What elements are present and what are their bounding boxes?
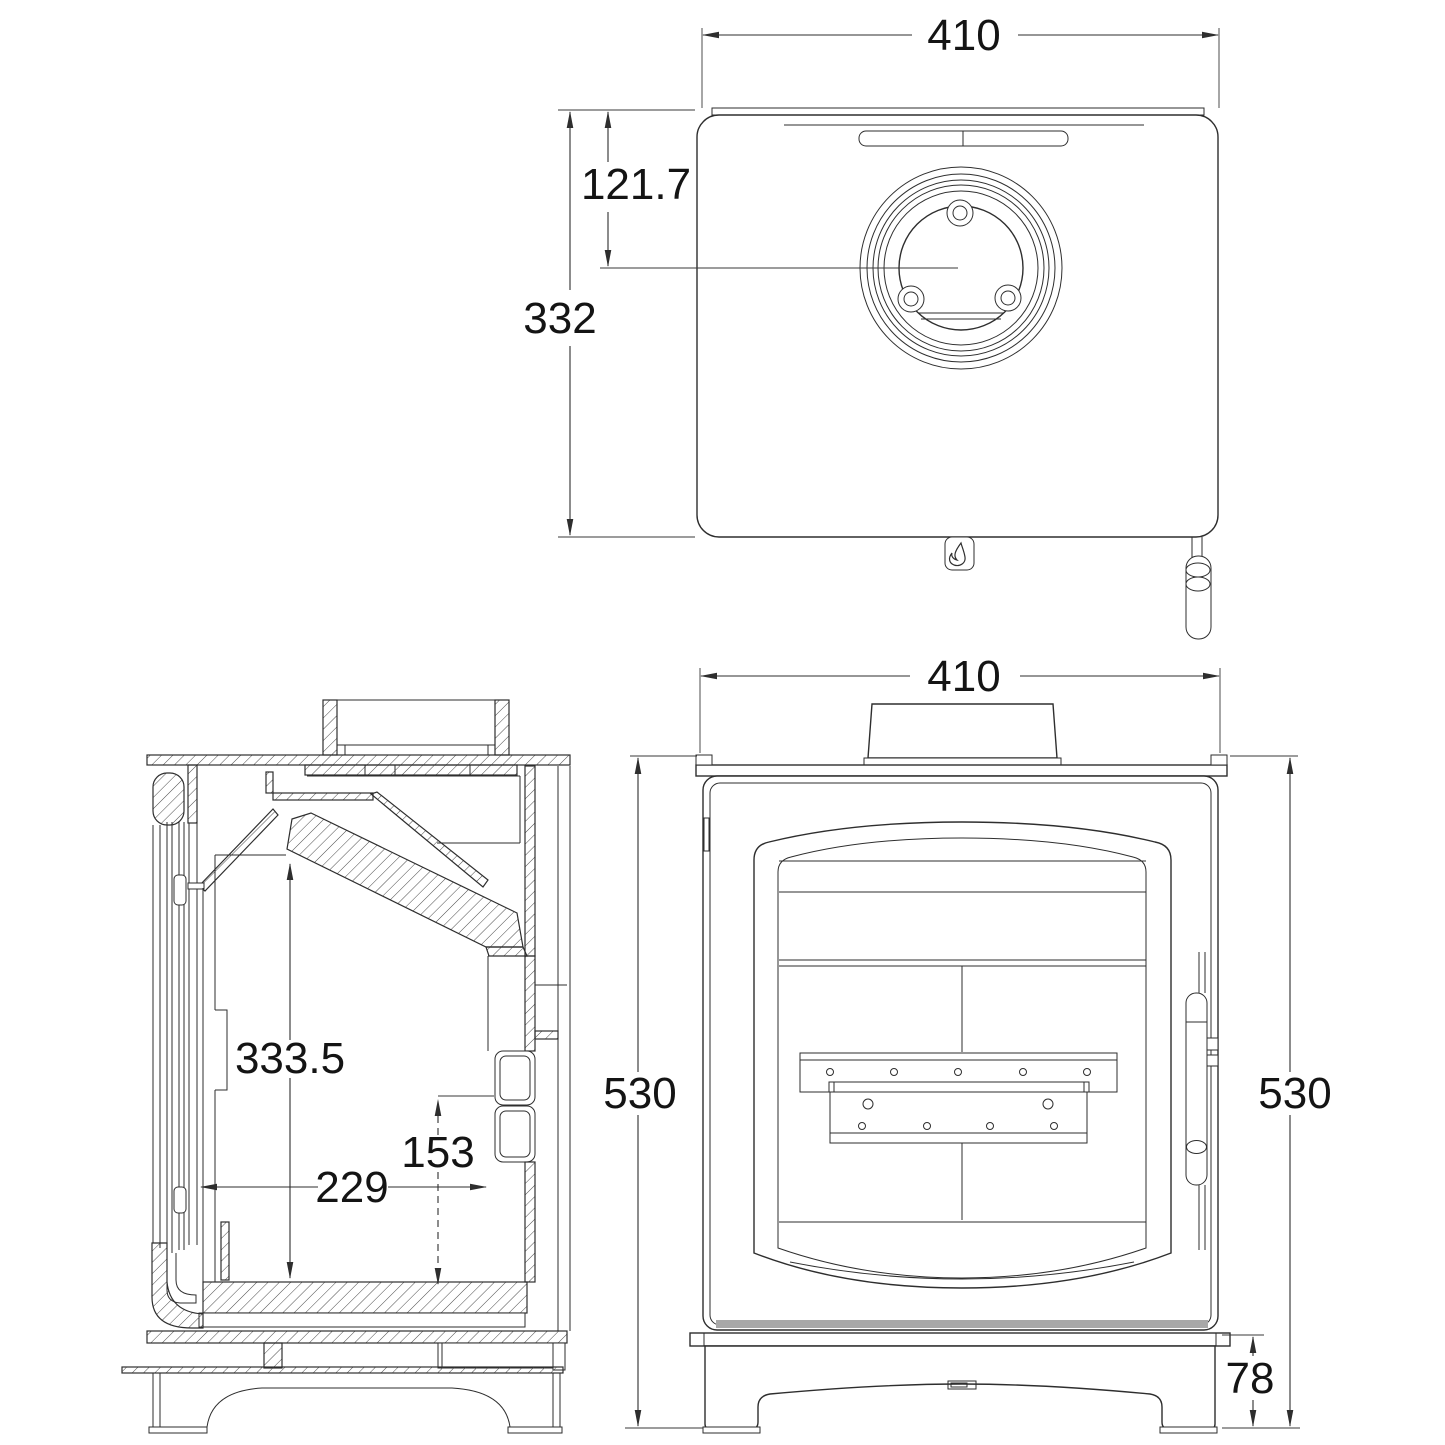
door-top-section [153, 773, 184, 825]
dim-height-left: 530 [603, 756, 703, 1428]
dim-plinth-height: 78 [1222, 1335, 1274, 1426]
dim-label-height-left: 530 [603, 1069, 676, 1118]
top-plate-front [696, 765, 1227, 776]
flame-badge [945, 537, 974, 570]
dim-height-right: 530 [1222, 756, 1332, 1428]
flue-collar-front [868, 704, 1057, 758]
dim-label-height-right: 530 [1258, 1069, 1331, 1118]
dim-label-flue-offset: 121.7 [581, 160, 691, 209]
dim-label-firebox-height: 333.5 [235, 1034, 345, 1083]
dim-label-rear-outlet-height: 153 [401, 1128, 474, 1177]
shell-bottom-corner [152, 1243, 203, 1328]
fuel-retainer [800, 1053, 1117, 1143]
technical-drawing-page: 410 121.7 332 [0, 0, 1445, 1445]
airwash-plate [273, 793, 373, 800]
door-hinge [174, 875, 186, 905]
plinth-arch [207, 1388, 510, 1427]
dim-label-plinth-height: 78 [1226, 1354, 1275, 1403]
top-plate-section [147, 755, 570, 765]
front-baffle-plate [199, 809, 278, 891]
front-view: 410 530 530 78 [603, 652, 1331, 1433]
dim-label-firebox-depth: 229 [315, 1163, 388, 1212]
dim-label-front-width: 410 [927, 652, 1000, 701]
base-plate-front [690, 1333, 1230, 1346]
heat-shield [122, 1367, 563, 1373]
top-rear-edge [712, 108, 1204, 115]
dim-label-top-width: 410 [927, 11, 1000, 60]
dim-top-width: 410 [702, 11, 1219, 108]
firebrick-base [203, 1282, 527, 1313]
base-plate-section [147, 1331, 567, 1343]
dim-label-top-depth: 332 [523, 294, 596, 343]
dim-rear-outlet-height: 153 [401, 1096, 494, 1284]
collar-wall-left [323, 700, 337, 755]
stove-top-plate [697, 115, 1218, 537]
grate-support [221, 1222, 229, 1280]
side-section-view: 333.5 153 229 [122, 700, 570, 1433]
door-latch [174, 1187, 186, 1213]
handle-icon [1186, 537, 1211, 639]
stove-technical-drawing: 410 121.7 332 [0, 0, 1445, 1445]
collar-mount-plate [305, 765, 517, 775]
top-plan-view: 410 121.7 332 [523, 11, 1219, 639]
rear-foot [508, 1427, 562, 1433]
collar-wall-right [495, 700, 509, 755]
front-wall-section [188, 765, 197, 823]
base-shadow-strip [716, 1320, 1208, 1328]
front-foot [149, 1427, 207, 1433]
dim-firebox-height: 333.5 [235, 864, 345, 1278]
stove-door [754, 822, 1218, 1288]
base-liner [199, 1313, 525, 1327]
rear-liner-upper [525, 766, 535, 956]
